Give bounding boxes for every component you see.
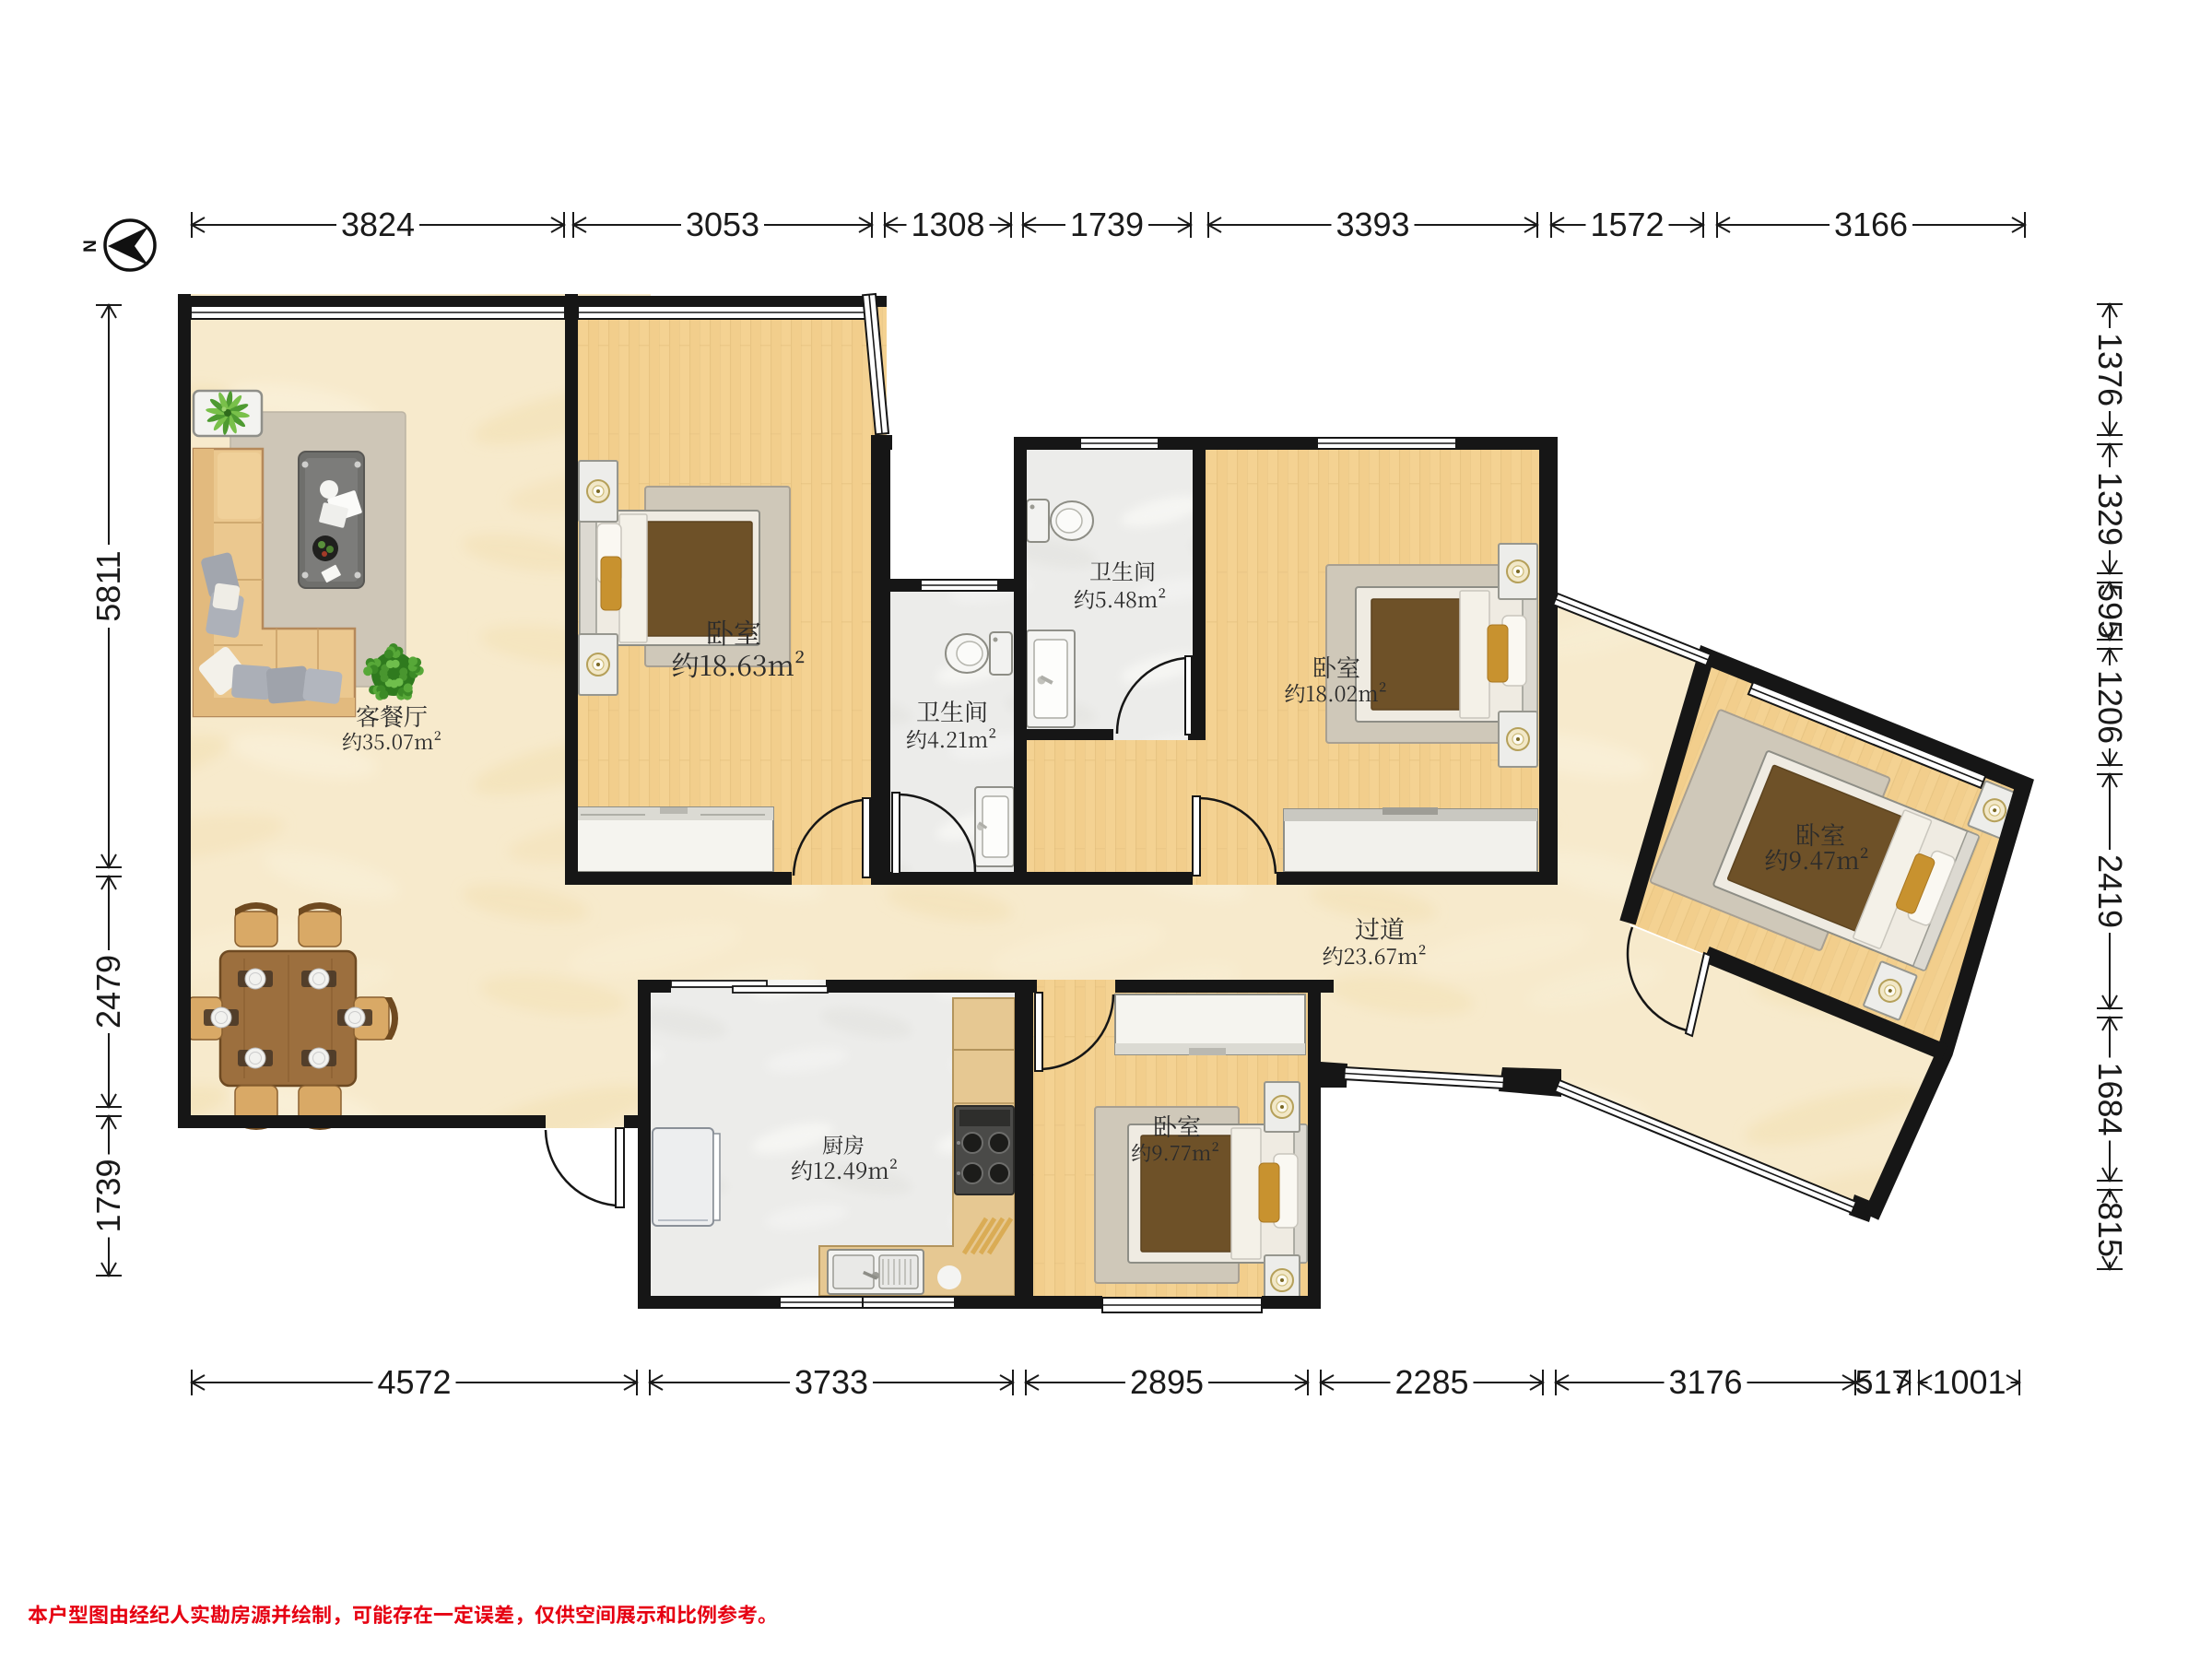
svg-text:4572: 4572 bbox=[377, 1363, 451, 1401]
svg-text:517: 517 bbox=[1854, 1363, 1910, 1401]
svg-text:2479: 2479 bbox=[89, 955, 127, 1029]
svg-text:3176: 3176 bbox=[1668, 1363, 1742, 1401]
svg-text:1376: 1376 bbox=[2091, 333, 2129, 406]
svg-text:1739: 1739 bbox=[1070, 206, 1144, 243]
svg-text:3393: 3393 bbox=[1335, 206, 1409, 243]
svg-text:1739: 1739 bbox=[89, 1159, 127, 1232]
svg-text:595: 595 bbox=[2091, 583, 2129, 639]
svg-text:2419: 2419 bbox=[2091, 854, 2129, 928]
svg-text:2285: 2285 bbox=[1394, 1363, 1468, 1401]
svg-text:1572: 1572 bbox=[1590, 206, 1664, 243]
svg-text:1329: 1329 bbox=[2091, 472, 2129, 546]
svg-text:3733: 3733 bbox=[794, 1363, 868, 1401]
svg-text:3166: 3166 bbox=[1834, 206, 1908, 243]
svg-text:N: N bbox=[81, 240, 100, 253]
svg-text:3053: 3053 bbox=[686, 206, 759, 243]
svg-text:5811: 5811 bbox=[89, 550, 127, 621]
svg-text:1684: 1684 bbox=[2091, 1062, 2129, 1135]
svg-text:3824: 3824 bbox=[341, 206, 415, 243]
svg-text:1206: 1206 bbox=[2091, 670, 2129, 744]
svg-text:815: 815 bbox=[2091, 1202, 2129, 1257]
svg-text:1308: 1308 bbox=[911, 206, 984, 243]
svg-text:2895: 2895 bbox=[1130, 1363, 1204, 1401]
svg-text:1001: 1001 bbox=[1932, 1363, 2006, 1401]
